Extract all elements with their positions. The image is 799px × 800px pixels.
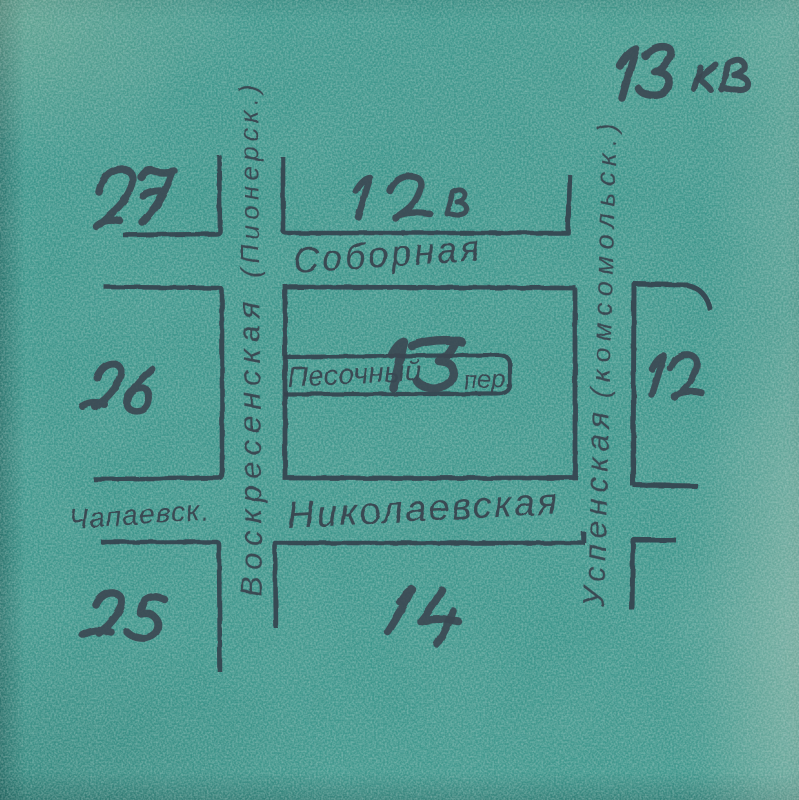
svg-text:Воскресенская(Пионерск.): Воскресенская(Пионерск.) <box>229 79 269 597</box>
svg-text:пер.: пер. <box>463 364 513 395</box>
